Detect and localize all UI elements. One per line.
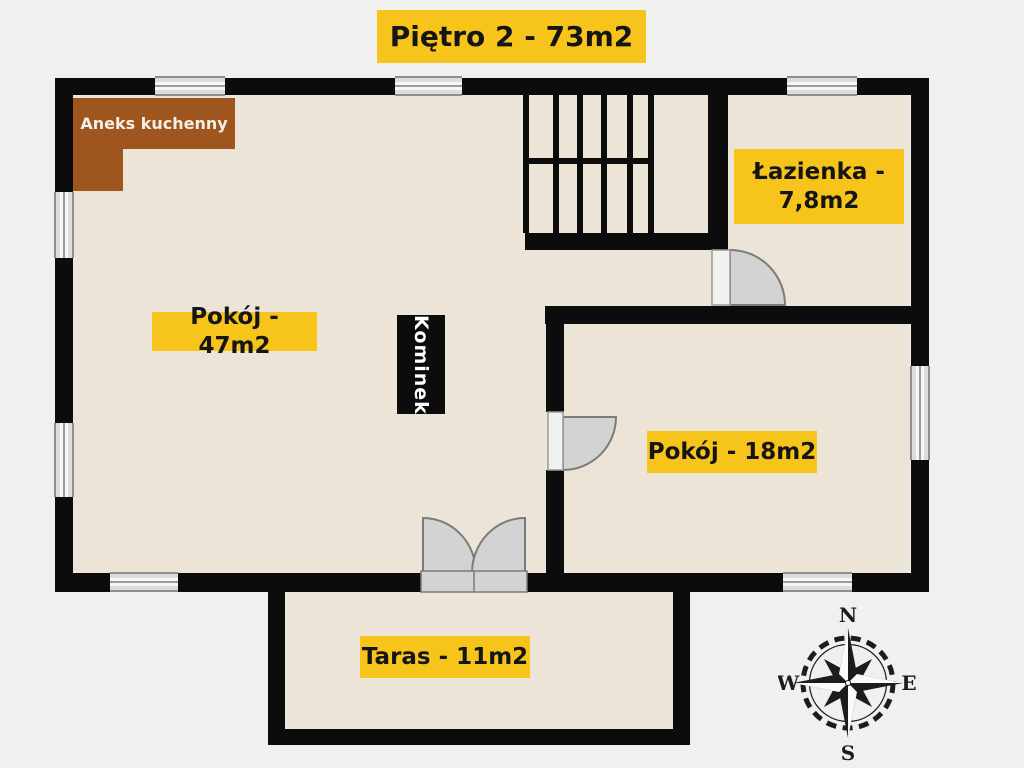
terrace-door-right-swing: [472, 518, 525, 573]
terrace-double-door: [421, 518, 527, 592]
bedroom-door-leaf: [548, 412, 563, 470]
bedroom-door-swing-arc: [563, 417, 616, 470]
bathroom-door-swing-arc: [730, 250, 785, 305]
room-label-main: Pokój - 47m2: [152, 312, 317, 351]
bathroom-door-leaf: [712, 250, 730, 305]
compass-letter-south: S: [841, 741, 855, 764]
terrace-door-left-swing: [423, 518, 476, 573]
room-label-bathroom: Łazienka - 7,8m2: [734, 149, 904, 224]
kitchen-annex-area: Aneks kuchenny: [73, 98, 235, 149]
kitchen-annex-label: Aneks kuchenny: [80, 114, 227, 133]
compass-letter-east: E: [901, 671, 916, 695]
compass-center-dot: [846, 681, 851, 686]
room-label-bathroom-line2: 7,8m2: [779, 187, 860, 216]
compass-letter-north: N: [839, 604, 857, 627]
fireplace-block: Kominek: [397, 315, 445, 414]
room-label-bathroom-line1: Łazienka -: [753, 158, 885, 187]
floor-plan-page: { "theme": { "colors": { "bg": "#f0f0ee"…: [0, 0, 1024, 768]
bathroom-door: [712, 250, 785, 305]
room-label-terrace: Taras - 11m2: [360, 636, 530, 678]
compass-rose: N S W E: [778, 604, 923, 764]
compass-letter-west: W: [778, 671, 800, 695]
room-label-bedroom: Pokój - 18m2: [647, 431, 817, 473]
kitchen-annex-extension: [73, 148, 123, 191]
bedroom-door: [548, 412, 616, 470]
